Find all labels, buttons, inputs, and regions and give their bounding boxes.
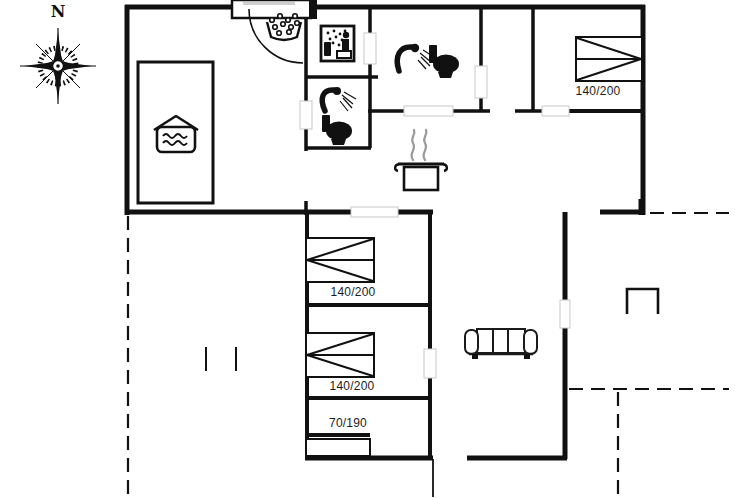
compass-north-label: N: [46, 2, 70, 21]
cooking-pot-icon: [395, 130, 447, 190]
shower-icon-small-room: [322, 87, 356, 111]
sauna-icon: [321, 26, 354, 61]
bed-size-label-ne: 140/200: [568, 84, 628, 98]
top-label-box: [232, 0, 317, 19]
bed-double-mid-upper: [306, 238, 374, 282]
door-openings: [300, 33, 570, 378]
bed-single: [306, 435, 370, 456]
shower-icon-bathroom: [397, 44, 434, 71]
toilet-icon-bathroom: [429, 45, 459, 78]
bed-size-label-mid-lower: 140/200: [322, 379, 382, 393]
bed-size-label-mid-upper: 140/200: [323, 285, 383, 299]
bed-size-label-single: 70/190: [318, 416, 378, 430]
bed-double-ne: [576, 37, 642, 81]
compass-rose-icon: [20, 28, 96, 104]
sofa-icon: [465, 329, 537, 359]
grill-icon: [627, 289, 658, 314]
toilet-icon-small-room: [322, 115, 352, 145]
floorplan-canvas: N 140/200 140/200 140/200 70/190: [0, 0, 754, 498]
bed-double-mid-lower: [306, 333, 374, 377]
